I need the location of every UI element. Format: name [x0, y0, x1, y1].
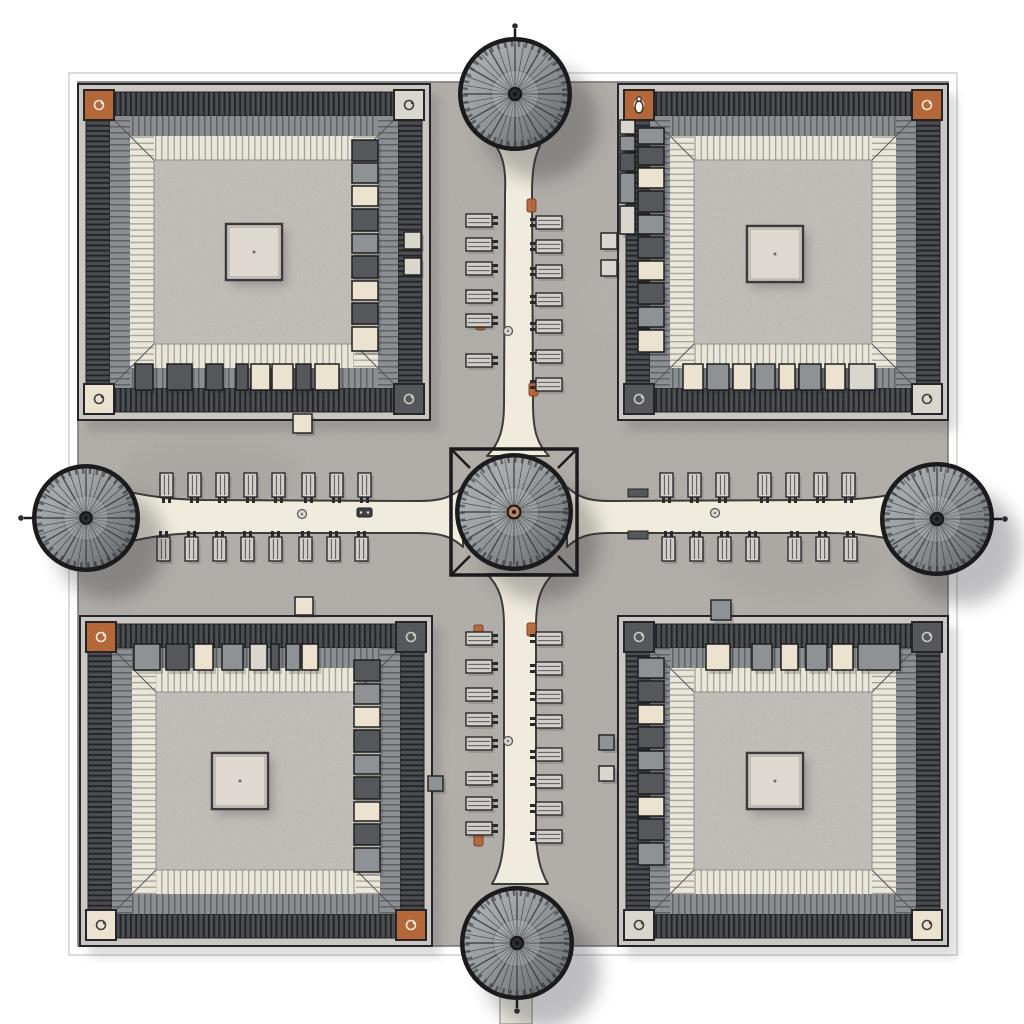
market-stall [707, 364, 729, 390]
roof-band-mid [650, 116, 916, 136]
bench [188, 473, 204, 503]
market-stall [638, 773, 664, 794]
arcade-walkway [872, 668, 896, 894]
roof-band-dark [916, 92, 940, 412]
corner-pavilion-tr [912, 90, 942, 120]
market-stall [354, 707, 380, 727]
building-northeast [601, 84, 957, 431]
market-stall [638, 215, 664, 234]
market-stall [620, 173, 635, 203]
market-stall [638, 843, 664, 865]
market-stall [236, 364, 248, 390]
market-stall [354, 660, 380, 681]
bench [358, 473, 374, 503]
arcade-walkway [670, 136, 694, 368]
bench [466, 688, 498, 704]
corner-pavilion-tr [396, 622, 426, 652]
market-stall [352, 303, 378, 324]
market-stall [352, 281, 378, 300]
bench [302, 473, 318, 503]
corner-pavilion-bl [624, 910, 654, 940]
market-stall [352, 234, 378, 253]
corner-pavilion-tr [912, 622, 942, 652]
kiosk [599, 735, 614, 750]
bench [330, 473, 346, 503]
market-stall [250, 644, 267, 670]
roof-band-mid [896, 648, 916, 914]
roof-band-mid [896, 116, 916, 388]
market-stall [638, 658, 664, 678]
kiosk [295, 597, 313, 615]
market-stall [354, 802, 380, 821]
market-stall [849, 364, 875, 390]
arcade-walkway [670, 668, 694, 894]
corner-pavilion-br [396, 910, 426, 940]
corner-pavilion-tr [394, 90, 424, 120]
roof-band-dark [916, 624, 940, 938]
site-plan [0, 0, 1024, 1024]
kiosk [404, 258, 421, 275]
figure-icon [635, 101, 643, 113]
market-stall [354, 777, 380, 799]
bench [660, 473, 676, 503]
roof-band-mid [650, 894, 916, 914]
finial-ball [1002, 516, 1008, 522]
corner-pavilion-bl [86, 910, 116, 940]
arcade-walkway [670, 136, 896, 160]
market-stall [134, 644, 160, 670]
market-stall [315, 364, 339, 390]
market-stall [755, 364, 775, 390]
corner-pavilion-bl [84, 384, 114, 414]
roof-band-mid [110, 116, 130, 388]
market-stall [620, 153, 635, 171]
roof-band-dark [86, 92, 422, 116]
site-plan-drawing [0, 0, 1024, 1024]
market-stall [638, 727, 664, 748]
bench [466, 772, 498, 788]
corner-pavilion-tl [86, 622, 116, 652]
market-stall [166, 644, 189, 670]
market-stall [251, 364, 270, 390]
market-stall [620, 120, 635, 134]
corner-pavilion-tl [624, 622, 654, 652]
path-end-cap [628, 531, 648, 539]
bench [466, 354, 498, 370]
market-stall [752, 644, 772, 670]
roof-band-dark [88, 914, 424, 938]
kiosk [601, 260, 617, 276]
market-stall [286, 644, 300, 670]
market-stall [352, 209, 378, 231]
bench [466, 290, 498, 306]
market-stall [272, 364, 293, 390]
market-stall [638, 705, 664, 724]
market-stall [638, 681, 664, 702]
roof-band-mid [110, 116, 398, 136]
market-stall [194, 644, 213, 670]
market-stall [354, 824, 380, 845]
market-stall [638, 797, 664, 816]
roof-band-dark [400, 624, 424, 938]
kiosk [293, 414, 312, 433]
bench [160, 473, 176, 503]
bench [466, 214, 498, 230]
bench [758, 473, 774, 503]
bench [786, 473, 802, 503]
market-stall [352, 186, 378, 206]
market-stall [206, 364, 223, 390]
kiosk [404, 232, 421, 249]
arcade-walkway [130, 136, 378, 160]
roof-band-dark [86, 92, 110, 412]
market-stall [825, 364, 845, 390]
corner-pavilion-br [394, 384, 424, 414]
market-stall [271, 644, 279, 670]
market-stall [706, 644, 730, 670]
bench [716, 473, 732, 503]
kiosk [601, 233, 617, 249]
market-stall [352, 140, 378, 161]
roof-band-dark [88, 624, 112, 938]
bench [466, 238, 498, 254]
market-stall [302, 644, 318, 670]
planter [527, 199, 536, 212]
finial-ball [512, 23, 518, 29]
market-stall [638, 751, 664, 770]
market-stall [779, 364, 795, 390]
bench [466, 314, 498, 330]
market-stall [638, 819, 664, 840]
bench [466, 737, 498, 753]
market-stall [781, 644, 798, 670]
bench [814, 473, 830, 503]
corner-pavilion-bl [624, 384, 654, 414]
arcade-walkway [130, 136, 154, 368]
bench [272, 473, 288, 503]
market-stall [638, 128, 664, 144]
finial-ball [514, 1008, 520, 1014]
roof-band-mid [112, 648, 132, 914]
kiosk [711, 600, 731, 620]
market-stall [352, 327, 378, 351]
building-southeast [599, 600, 957, 957]
market-stall [638, 147, 664, 165]
arcade-walkway [132, 668, 156, 894]
cart [357, 508, 372, 517]
arcade-walkway [872, 136, 896, 368]
corner-pavilion-br [912, 910, 942, 940]
path-end-cap [628, 489, 648, 497]
market-stall [352, 256, 378, 278]
bench [466, 632, 498, 648]
corner-pavilion-br [912, 384, 942, 414]
bench [466, 797, 498, 813]
market-stall [638, 261, 664, 280]
roof-band-mid [112, 894, 400, 914]
market-stall [354, 730, 380, 752]
bench [466, 262, 498, 278]
corner-pavilion-tl [84, 90, 114, 120]
bench [466, 713, 498, 729]
market-stall [638, 283, 664, 304]
market-stall [620, 136, 635, 151]
bench [466, 660, 498, 676]
market-stall [638, 307, 664, 327]
market-stall [806, 644, 827, 670]
market-stall [638, 330, 664, 352]
roof-band-dark [626, 92, 940, 116]
market-stall [620, 206, 635, 234]
market-stall [832, 644, 853, 670]
roof-band-dark [626, 914, 940, 938]
arcade-walkway [132, 870, 380, 894]
market-stall [135, 364, 153, 390]
market-stall [354, 684, 380, 704]
building-southwest [80, 597, 446, 957]
market-stall [638, 237, 664, 258]
market-stall [296, 364, 311, 390]
bench [842, 473, 858, 503]
building-northwest [78, 84, 439, 436]
market-stall [799, 364, 821, 390]
market-stall [683, 364, 703, 390]
finial-ball [18, 515, 24, 521]
bench [466, 822, 498, 838]
market-stall [354, 755, 380, 774]
market-stall [167, 364, 192, 390]
market-stall [222, 644, 243, 670]
market-stall [352, 163, 378, 183]
market-stall [638, 191, 664, 212]
bench [688, 473, 704, 503]
market-stall [733, 364, 751, 390]
kiosk [599, 766, 614, 781]
kiosk [428, 776, 443, 791]
arcade-walkway [670, 870, 896, 894]
market-stall [354, 848, 380, 872]
market-stall [638, 168, 664, 188]
market-stall [858, 644, 900, 670]
bench [244, 473, 260, 503]
bench [216, 473, 232, 503]
